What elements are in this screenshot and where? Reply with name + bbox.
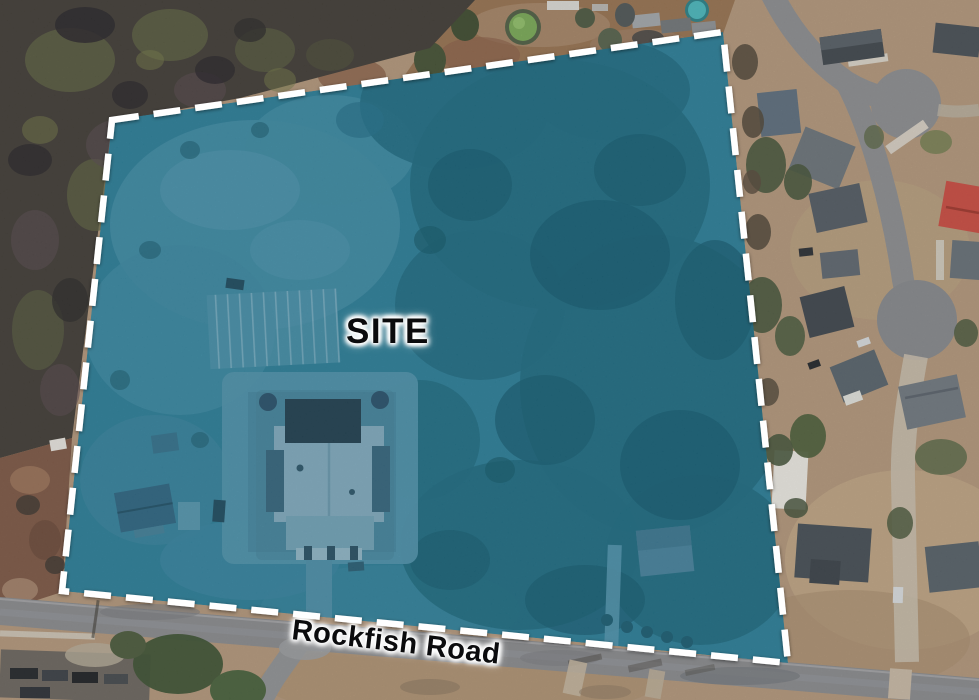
map-artwork	[0, 0, 979, 700]
grain-light	[0, 0, 979, 700]
site-label: SITE	[346, 312, 430, 352]
aerial-map: SITE Rockfish Road	[0, 0, 979, 700]
